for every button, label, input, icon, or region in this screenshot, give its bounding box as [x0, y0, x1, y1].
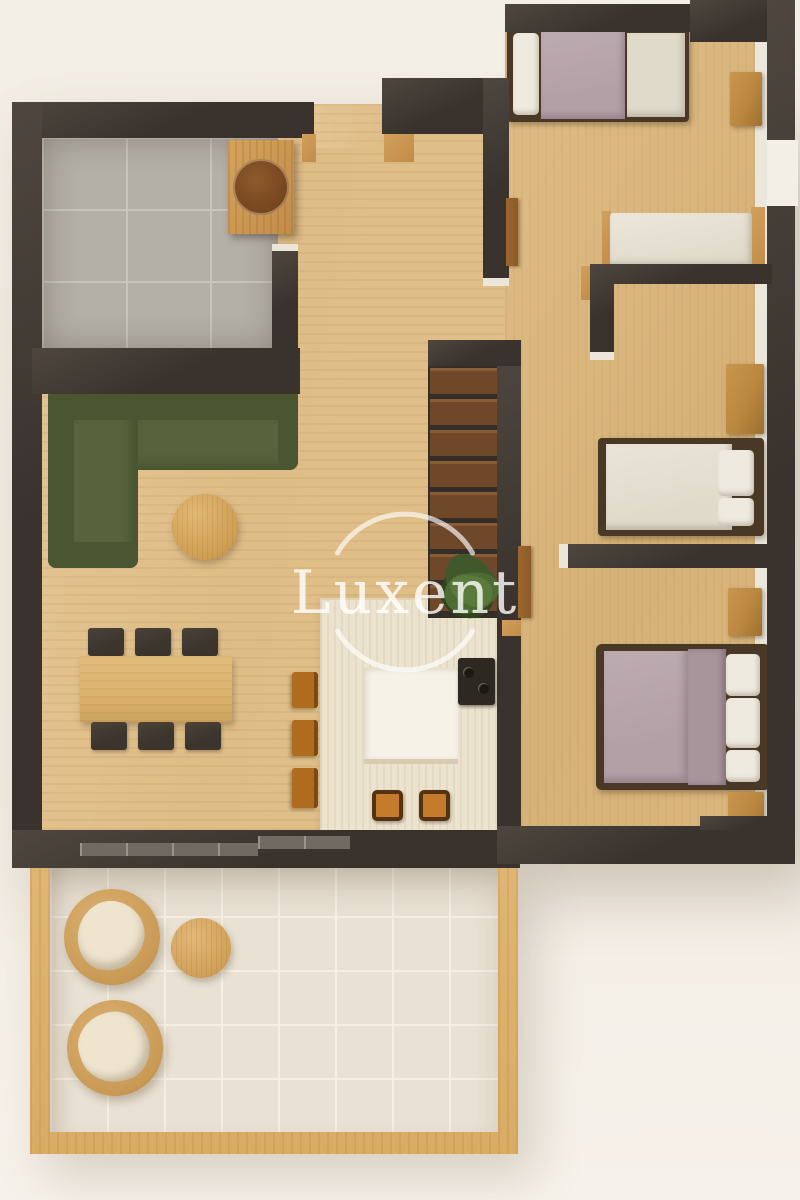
- watermark-arc-bottom: [338, 631, 473, 670]
- stair-tread: [430, 368, 499, 394]
- bed-single-middle: [598, 438, 764, 536]
- bed-double-master: [596, 644, 770, 790]
- terrace-side-table: [171, 918, 231, 978]
- bed-pillow: [726, 654, 760, 696]
- dining-chair: [135, 628, 171, 656]
- bed-duvet-white: [606, 444, 732, 530]
- daybed-mattress: [610, 213, 752, 267]
- bed-duvet-white: [627, 33, 685, 117]
- wall-stairs-top: [428, 340, 521, 366]
- dining-chair: [182, 628, 218, 656]
- sofa-armrest-right: [278, 388, 298, 470]
- dining-chair: [91, 722, 127, 750]
- wall-right-outer: [767, 0, 795, 860]
- wardrobe: [726, 364, 764, 434]
- window-right: [767, 140, 798, 206]
- dining-chair: [138, 722, 174, 750]
- dining-chair: [88, 628, 124, 656]
- bed-pillow: [513, 33, 539, 115]
- bed-pillow: [718, 498, 754, 526]
- bed-double-top: [507, 26, 689, 122]
- stair-tread: [430, 461, 499, 487]
- dining-table: [80, 656, 232, 722]
- wall-right-wing-bottom: [497, 826, 795, 864]
- wall-top-left: [12, 102, 314, 138]
- terrace-lounge-chair-1: [64, 889, 160, 985]
- dining-chair: [185, 722, 221, 750]
- wall-bathroom-bottom: [32, 348, 300, 394]
- round-basin: [233, 159, 289, 215]
- wall-end-cap: [581, 266, 590, 300]
- wall-bedroom2-left: [590, 264, 614, 356]
- chair-cushion: [71, 894, 152, 978]
- wall-end-cap: [384, 134, 414, 162]
- bed-pillow: [726, 698, 760, 748]
- kitchen-stool: [419, 790, 450, 821]
- watermark-text: Luxent: [291, 558, 520, 628]
- bed-pillow: [718, 450, 754, 496]
- island-bar-chair: [292, 768, 318, 808]
- bathroom-vanity: [228, 140, 294, 234]
- wall-right-wing-top: [505, 4, 707, 32]
- daybed-headboard: [751, 207, 765, 271]
- sliding-door-glass: [80, 843, 258, 856]
- terrace-lounge-chair-2: [67, 1000, 163, 1096]
- bed-duvet-mauve: [541, 31, 625, 119]
- stair-tread: [430, 399, 499, 425]
- bed-duvet-fold: [688, 649, 726, 785]
- wall-bathroom-right: [272, 250, 298, 352]
- watermark: Luxent: [215, 497, 595, 687]
- wall-left: [12, 102, 42, 868]
- entry-door-leaf: [506, 198, 518, 266]
- stair-tread: [430, 430, 499, 456]
- floor-plan-scene: Luxent: [0, 0, 800, 1200]
- kitchen-stool: [372, 790, 403, 821]
- wall-end-cap: [302, 134, 316, 162]
- wall-end-cap: [483, 278, 509, 286]
- bed-pillow: [726, 750, 760, 782]
- wall-end-cap: [590, 352, 614, 360]
- wall-end-cap: [272, 244, 298, 251]
- chair-cushion: [70, 1003, 158, 1091]
- nightstand: [730, 72, 762, 126]
- sliding-door-glass: [258, 836, 350, 849]
- island-bar-chair: [292, 720, 318, 756]
- watermark-arc-top: [338, 514, 473, 553]
- sofa-armrest-bottom: [48, 542, 138, 568]
- wall-bedroom1-bottom: [590, 264, 772, 284]
- nightstand: [728, 588, 762, 636]
- bed-duvet-mauve: [604, 651, 688, 783]
- wall-right-wing-bottom-step: [700, 816, 795, 830]
- wall-master-top: [568, 544, 795, 568]
